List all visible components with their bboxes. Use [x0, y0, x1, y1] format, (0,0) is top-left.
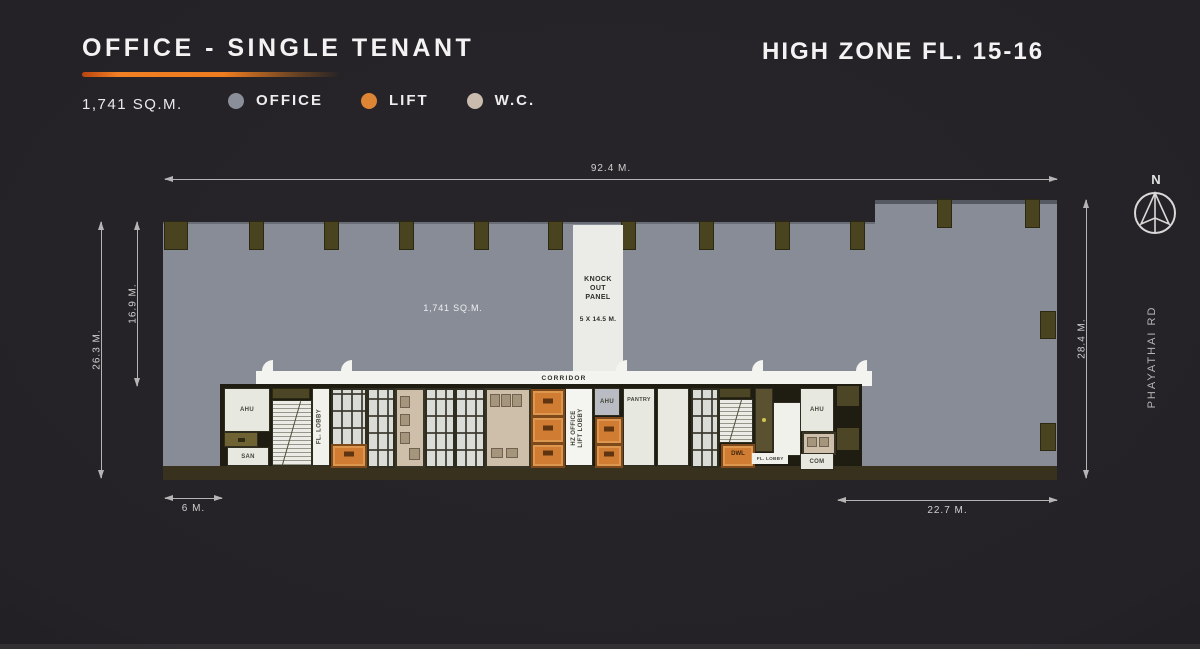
- floor-area-label: 1,741 SQ.M.: [398, 303, 508, 313]
- room-san: SAN: [227, 447, 269, 466]
- lift-door-mark: [543, 451, 553, 456]
- stairwell-right: [719, 399, 753, 443]
- dimension-label-bottom-right: 22.7 M.: [838, 505, 1057, 516]
- lift-car: [531, 416, 565, 444]
- column: [400, 222, 413, 249]
- wc-fixture: [491, 448, 503, 458]
- room-wc-right: [802, 432, 836, 455]
- column: [938, 200, 951, 227]
- room-wc-west: [395, 388, 425, 468]
- column: [851, 222, 864, 249]
- floor-plan-page: OFFICE - SINGLE TENANT HIGH ZONE FL. 15-…: [0, 0, 1200, 649]
- knock-out-panel: KNOCK OUT PANEL 5 X 14.5 M.: [573, 225, 623, 371]
- shaft-room: [455, 388, 485, 468]
- room-pantry: PANTRY: [623, 388, 655, 466]
- fire-lobby-left-label-wrap: FL. LOBBY: [317, 397, 324, 457]
- column: [549, 222, 562, 249]
- office-floor-slab-right-wing: [875, 200, 1057, 480]
- lift-door-mark: [344, 452, 354, 457]
- room-com: COM: [800, 453, 834, 470]
- zone-title: HIGH ZONE FL. 15-16: [762, 38, 1044, 66]
- lift-color-dot-icon: [361, 93, 377, 109]
- south-facade-wall: [163, 466, 1057, 480]
- column: [325, 222, 338, 249]
- shaft-room: [691, 388, 719, 468]
- stair-shaft-head: [719, 388, 751, 398]
- dimension-label-top: 92.4 M.: [165, 163, 1057, 174]
- wc-fixture: [400, 414, 410, 426]
- legend-wc-label: W.C.: [495, 92, 536, 109]
- wc-fixture: [819, 437, 829, 447]
- column: [776, 222, 789, 249]
- dimension-label-left-inner: 16.9 M.: [128, 269, 139, 339]
- dimension-line-top: [165, 179, 1057, 180]
- legend-item-lift: LIFT: [361, 92, 429, 109]
- room-ahu-right: AHU: [800, 388, 834, 432]
- lift-door-mark: [604, 452, 614, 457]
- wc-fixture: [512, 394, 522, 407]
- wc-fixture: [400, 432, 410, 444]
- service-lift: DWL: [721, 444, 755, 468]
- legend-item-wc: W.C.: [467, 92, 536, 109]
- wc-color-dot-icon: [467, 93, 483, 109]
- room-ahu-left: AHU: [224, 388, 270, 432]
- hz-lift-lobby-label-wrap: HZ OFFICE LIFT LOBBY: [571, 398, 585, 458]
- column: [250, 222, 263, 249]
- lift-door-mark: [604, 426, 614, 431]
- stair-direction-line: [729, 400, 742, 442]
- column: [700, 222, 713, 249]
- column: [475, 222, 488, 249]
- dimension-label-bottom-left: 6 M.: [165, 503, 222, 514]
- fire-lobby-right-label: FL. LOBBY: [757, 456, 784, 461]
- lift-car: [531, 389, 565, 417]
- door-mark: [238, 438, 245, 442]
- shaft-room: [425, 388, 455, 468]
- knock-out-panel-label: KNOCK: [573, 275, 623, 284]
- room-closet-left: [224, 432, 258, 447]
- legend: OFFICE LIFT W.C.: [228, 92, 535, 109]
- column: [1041, 312, 1055, 338]
- title-accent-underline: [82, 72, 340, 77]
- page-title: OFFICE - SINGLE TENANT: [82, 34, 474, 63]
- stair-direction-line: [282, 401, 301, 465]
- compass-north-label: N: [1143, 172, 1169, 187]
- lift-car: [595, 444, 623, 468]
- dimension-line-bottom-right: [838, 500, 1057, 501]
- office-color-dot-icon: [228, 93, 244, 109]
- wc-fixture: [506, 448, 518, 458]
- column: [1041, 424, 1055, 450]
- hz-lift-lobby-label-line1: HZ OFFICE: [571, 398, 578, 458]
- stair-shaft-head: [272, 388, 310, 399]
- shaft-room: [331, 388, 367, 446]
- room-shaft-dark: [755, 388, 773, 452]
- fire-lobby-left-label: FL. LOBBY: [317, 397, 324, 457]
- wc-fixture: [807, 437, 817, 447]
- room-wc-central: [485, 388, 531, 468]
- dimension-label-left-outer: 26.3 M.: [92, 315, 103, 385]
- knock-out-panel-size: 5 X 14.5 M.: [573, 316, 623, 323]
- column: [165, 222, 187, 249]
- service-lift-label: DWL: [723, 451, 753, 457]
- room-open: [657, 388, 689, 466]
- shaft-room: [367, 388, 395, 468]
- room-ahu-mid: AHU: [594, 388, 620, 416]
- dimension-line-bottom-left: [165, 498, 222, 499]
- legend-lift-label: LIFT: [389, 92, 429, 109]
- stairwell-left: [272, 400, 312, 466]
- lift-car: [531, 443, 565, 468]
- lift-door-mark: [543, 425, 553, 430]
- equipment-dot: [762, 418, 766, 422]
- road-label: PHAYATHAI RD: [1146, 297, 1158, 417]
- legend-office-label: OFFICE: [256, 92, 323, 109]
- fire-lobby-right: FL. LOBBY: [752, 453, 788, 464]
- dimension-label-right: 28.4 M.: [1077, 304, 1088, 374]
- core-wall-chunk: [837, 428, 859, 450]
- wc-fixture: [400, 396, 410, 408]
- column: [1026, 200, 1039, 227]
- legend-item-office: OFFICE: [228, 92, 323, 109]
- wc-fixture: [409, 448, 420, 460]
- north-arrow-icon: [1131, 189, 1179, 237]
- total-area-label: 1,741 SQ.M.: [82, 96, 183, 113]
- core-wall-chunk: [837, 386, 859, 406]
- room-lobby-right: [773, 402, 801, 456]
- lift-car: [331, 444, 367, 468]
- lift-door-mark: [543, 398, 553, 403]
- lift-car: [595, 417, 623, 445]
- bottom-edge-strip: [0, 644, 1200, 649]
- wc-fixture: [490, 394, 500, 407]
- column: [622, 222, 635, 249]
- wc-fixture: [501, 394, 511, 407]
- hz-lift-lobby-label-line2: LIFT LOBBY: [578, 398, 585, 458]
